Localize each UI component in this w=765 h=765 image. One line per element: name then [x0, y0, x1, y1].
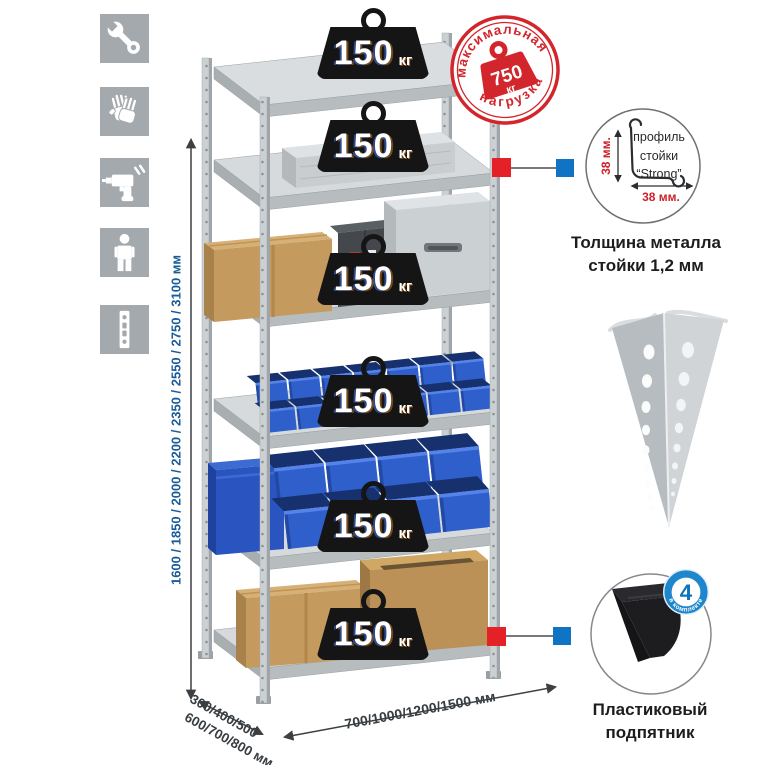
max-load-stamp: максимальная нагрузка 750 кг [440, 5, 570, 135]
load-unit: кг [398, 278, 412, 295]
badge-count: 4 [680, 580, 693, 605]
profile-dim-horizontal: 38 мм. [642, 190, 680, 204]
load-unit: кг [398, 525, 412, 542]
caption-line: стойки 1,2 мм [571, 254, 721, 277]
caption-line: Толщина металла [571, 231, 721, 254]
angle-post-image [610, 312, 726, 527]
load-unit: кг [398, 633, 412, 650]
shelving-infographic: 1600 / 1850 / 2000 / 2200 / 2350 / 2550 … [0, 0, 765, 765]
shelf-load-badge: 150кг [317, 356, 429, 427]
shelf-load-badge: 150кг [317, 101, 429, 172]
profile-label-line1: профиль [616, 128, 702, 147]
gloves-icon [100, 87, 149, 136]
shelf-load-badge: 150кг [317, 589, 429, 660]
caption-line: подпятник [593, 721, 708, 744]
plastic-foot-caption: Пластиковый подпятник [593, 698, 708, 744]
callout-red-square [492, 158, 511, 177]
profile-dim-vertical: 38 мм. [599, 137, 613, 175]
load-value: 150 [334, 34, 394, 73]
load-unit: кг [398, 400, 412, 417]
included-count-badge: 4 в комплекте [660, 566, 712, 618]
person-icon [100, 228, 149, 277]
callout-blue-square [553, 627, 571, 645]
perforated-profile-icon [100, 305, 149, 354]
caption-line: Пластиковый [593, 698, 708, 721]
shelf-load-badge: 150кг [317, 8, 429, 79]
drill-icon [100, 158, 149, 207]
wrench-icon [100, 14, 149, 63]
profile-label-line3: “Strong” [616, 165, 702, 184]
shelf-load-badge: 150кг [317, 481, 429, 552]
shelf-load-badge: 150кг [317, 234, 429, 305]
height-dimension-label: 1600 / 1850 / 2000 / 2200 / 2350 / 2550 … [169, 255, 184, 585]
metal-thickness-caption: Толщина металла стойки 1,2 мм [571, 231, 721, 277]
load-unit: кг [398, 145, 412, 162]
load-value: 150 [334, 615, 394, 654]
load-unit: кг [398, 52, 412, 69]
load-value: 150 [334, 260, 394, 299]
load-value: 150 [334, 127, 394, 166]
callout-connectors [487, 158, 574, 646]
profile-label: профиль стойки “Strong” [616, 128, 702, 184]
blue-tote [208, 457, 284, 555]
profile-label-line2: стойки [616, 147, 702, 166]
callout-red-square [487, 627, 506, 646]
load-value: 150 [334, 382, 394, 421]
load-value: 150 [334, 507, 394, 546]
callout-blue-square [556, 159, 574, 177]
